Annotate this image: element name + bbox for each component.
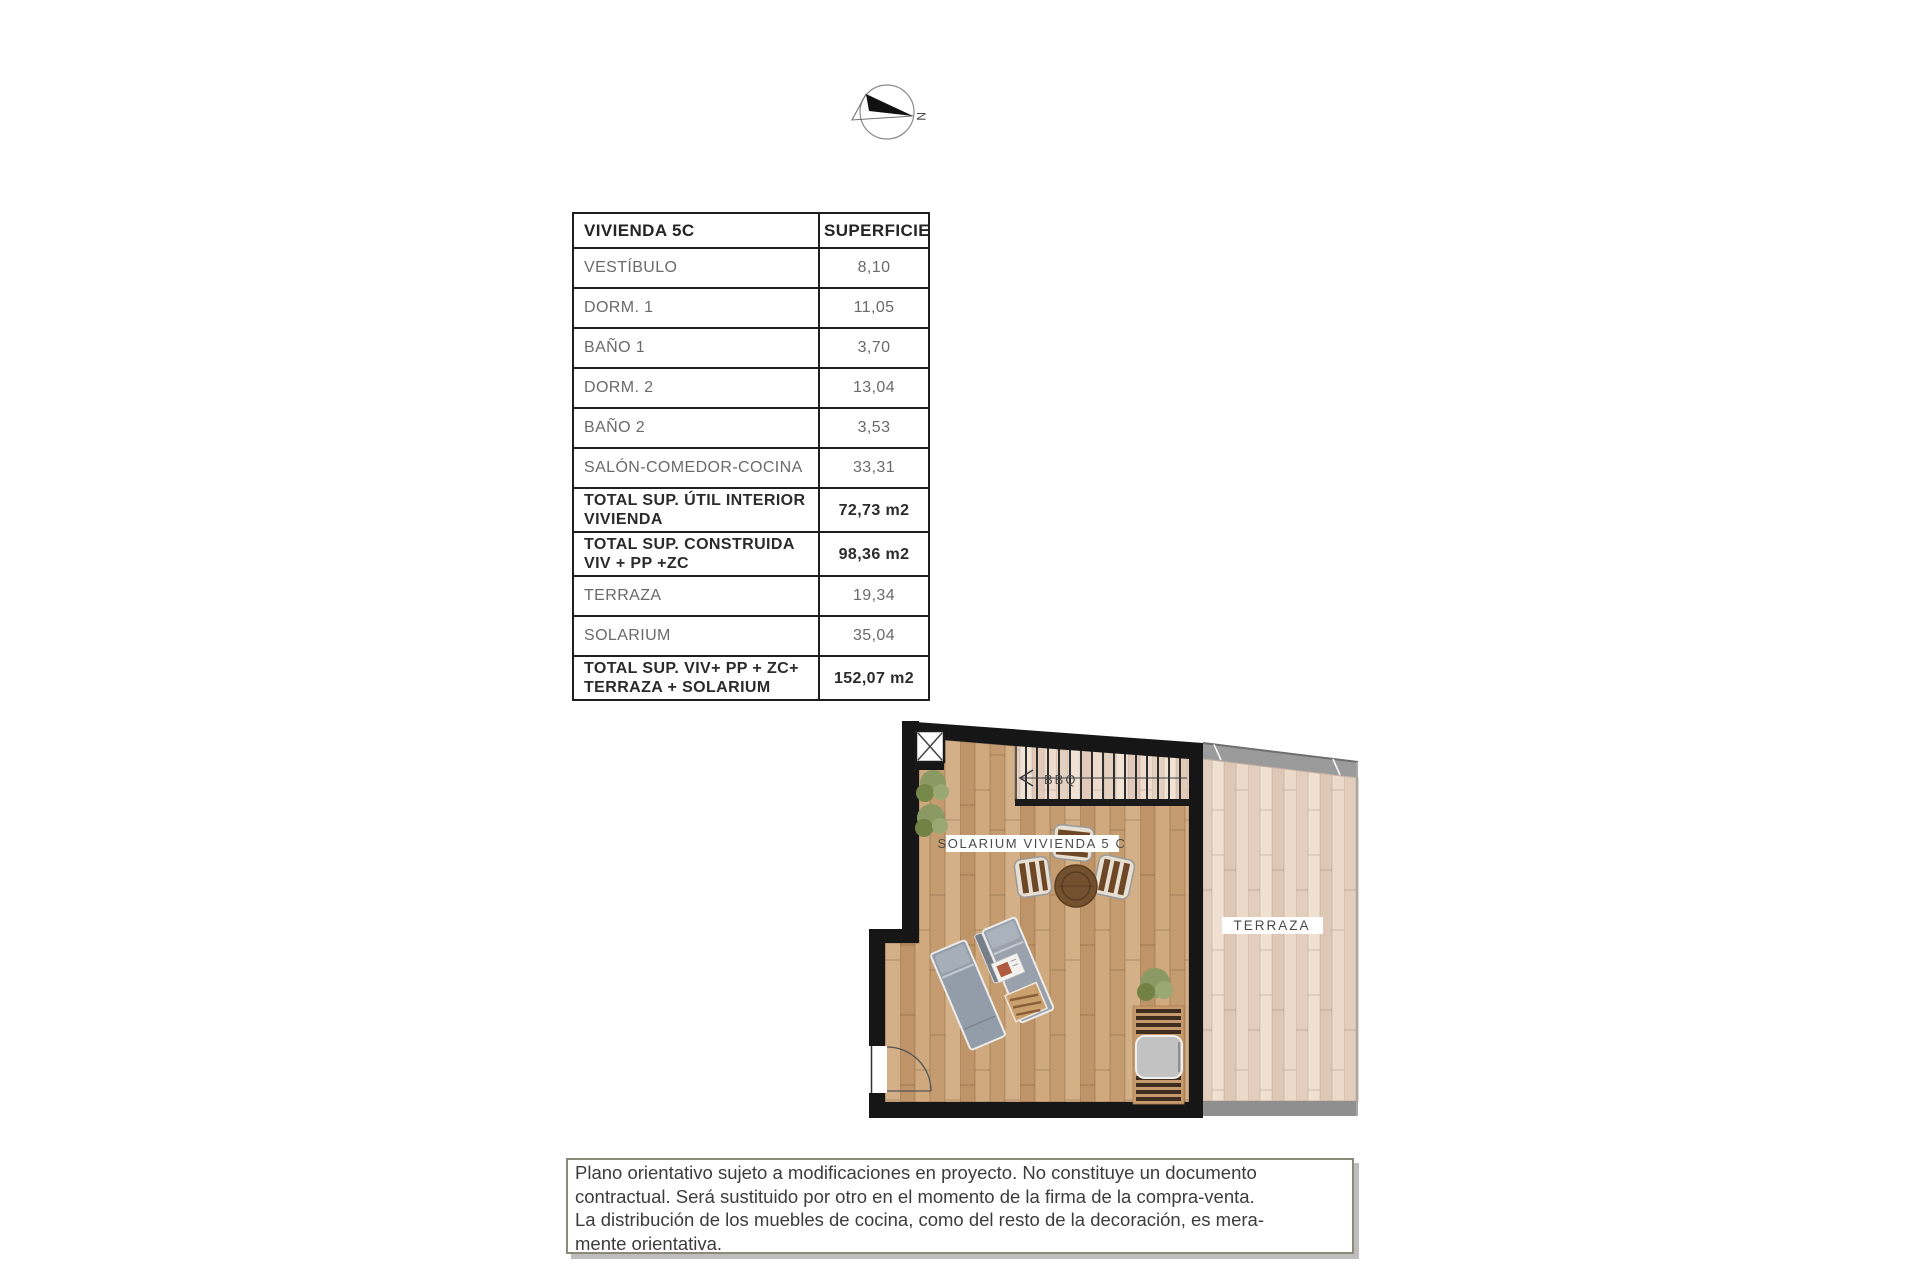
plan-sheet: N BBQ (0, 0, 1920, 1280)
table-row: SALÓN-COMEDOR-COCINA 33,31 (573, 448, 929, 488)
table-total-row: TOTAL SUP. ÚTIL INTERIOR VIVIENDA 72,73 … (573, 488, 929, 532)
disclaimer-box: Plano orientativo sujeto a modificacione… (566, 1158, 1354, 1254)
table-title: VIVIENDA 5C (573, 213, 819, 248)
disclaimer-line: contractual. Será sustituido por otro en… (575, 1185, 1345, 1209)
deck-mat (1133, 1006, 1184, 1104)
terraza-bottom-band (1203, 1101, 1358, 1116)
chair (1092, 854, 1136, 901)
svg-text:TERRAZA: TERRAZA (1233, 918, 1310, 933)
table-row: TERRAZA 19,34 (573, 576, 929, 616)
pillar-icon (916, 731, 944, 762)
deck-chair (1136, 1036, 1182, 1078)
table-total-row: TOTAL SUP. CONSTRUIDA VIV + PP +ZC 98,36… (573, 532, 929, 576)
terraza-label: TERRAZA (1222, 917, 1323, 934)
compass-north-label: N (914, 112, 928, 121)
table-row: DORM. 1 11,05 (573, 288, 929, 328)
round-table (1055, 865, 1097, 907)
table-row: SOLARIUM 35,04 (573, 616, 929, 656)
compass-icon: N (852, 85, 928, 139)
bbq-label: BBQ (1044, 772, 1077, 787)
disclaimer-line: La distribución de los muebles de cocina… (575, 1208, 1345, 1232)
table-surface-header: SUPERFICIE (819, 213, 929, 248)
table-row: BAÑO 1 3,70 (573, 328, 929, 368)
table-row: DORM. 2 13,04 (573, 368, 929, 408)
table-total-row: TOTAL SUP. VIV+ PP + ZC+ TERRAZA + SOLAR… (573, 656, 929, 700)
chair (1014, 856, 1053, 898)
table-row: BAÑO 2 3,53 (573, 408, 929, 448)
solarium-label: SOLARIUM VIVIENDA 5 C (938, 835, 1127, 852)
svg-text:SOLARIUM VIVIENDA 5 C: SOLARIUM VIVIENDA 5 C (938, 836, 1127, 851)
floor-plan-drawing: N BBQ (0, 0, 1920, 1280)
disclaimer-line: Plano orientativo sujeto a modificacione… (575, 1161, 1345, 1185)
table-header-row: VIVIENDA 5C SUPERFICIE (573, 213, 929, 248)
disclaimer-line: mente orientativa. (575, 1232, 1345, 1256)
surface-table: VIVIENDA 5C SUPERFICIE VESTÍBULO 8,10 DO… (572, 212, 930, 701)
table-row: VESTÍBULO 8,10 (573, 248, 929, 288)
